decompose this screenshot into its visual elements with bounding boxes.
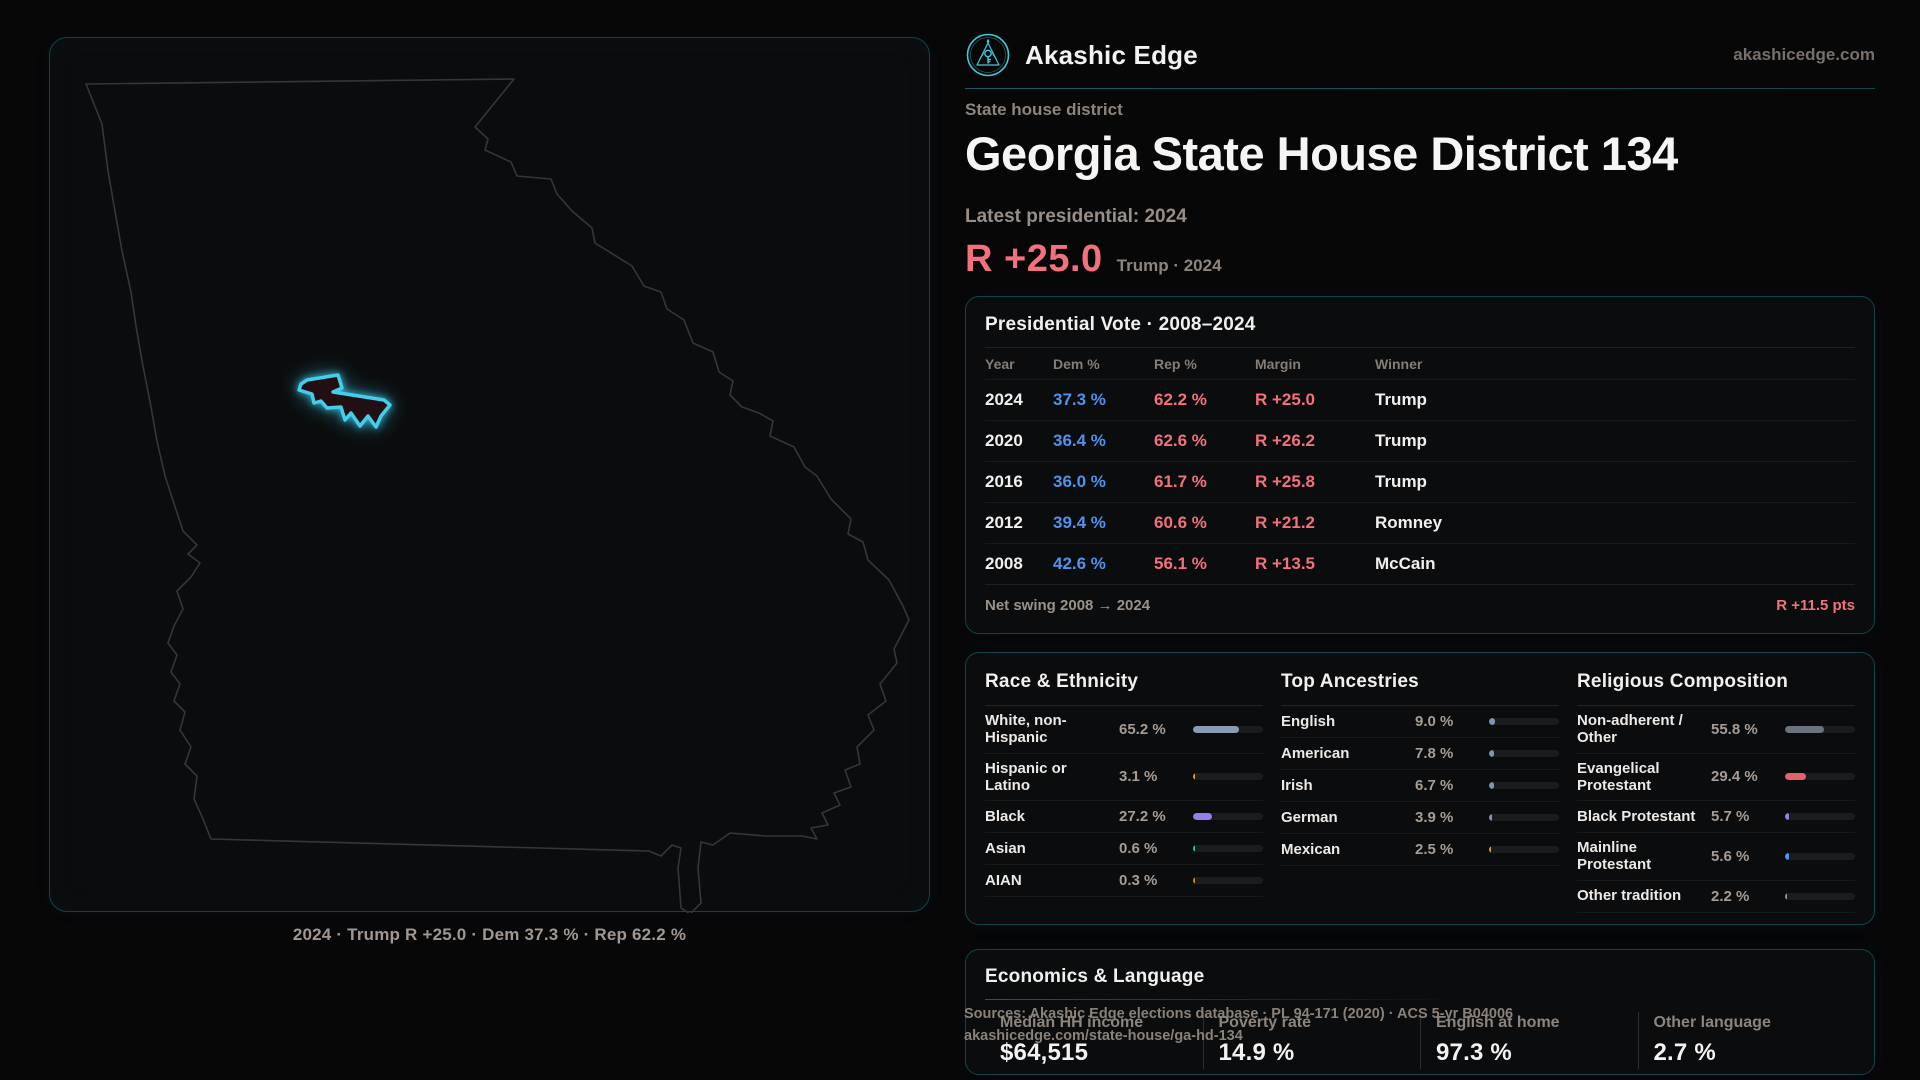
presidential-row-2020: 202036.4 %62.6 %R +26.2Trump [985, 420, 1855, 461]
stat-bar-fill [1489, 814, 1492, 821]
stat-row: Evangelical Protestant29.4 % [1577, 754, 1855, 802]
econ-stat-other-language: Other language2.7 % [1638, 1012, 1856, 1069]
stat-label: Mainline Protestant [1577, 839, 1711, 874]
stat-bar-track [1785, 773, 1855, 780]
brand-name: Akashic Edge [1025, 40, 1198, 71]
cell-dem-pct: 37.3 % [1053, 390, 1154, 410]
stat-bar-fill [1193, 773, 1195, 780]
presidential-vote-panel: Presidential Vote · 2008–2024 YearDem %R… [965, 296, 1875, 634]
stat-bar-fill [1489, 750, 1494, 757]
stat-value: 2.5 % [1415, 841, 1489, 858]
stat-label: Black Protestant [1577, 808, 1711, 825]
stat-row: American7.8 % [1281, 738, 1559, 770]
stat-label: Black [985, 808, 1119, 825]
stat-value: 55.8 % [1711, 721, 1785, 738]
margin-value: R +25.0 [965, 238, 1103, 281]
stat-bar-track [1785, 726, 1855, 733]
column-header-rep: Rep % [1154, 356, 1255, 372]
cell-margin: R +21.2 [1255, 513, 1375, 533]
demo-group-title: Religious Composition [1577, 671, 1855, 706]
economics-title: Economics & Language [985, 966, 1855, 988]
stat-label: Asian [985, 840, 1119, 857]
akashic-edge-logo-icon [965, 32, 1011, 78]
margin-context: Trump · 2024 [1117, 256, 1222, 276]
demographics-grid: Race & EthnicityWhite, non-Hispanic65.2 … [985, 671, 1855, 913]
econ-stat-value: 14.9 % [1219, 1039, 1421, 1067]
district-shape[interactable] [299, 375, 390, 427]
cell-margin: R +26.2 [1255, 431, 1375, 451]
stat-row: AIAN0.3 % [985, 865, 1263, 897]
stat-bar-track [1193, 877, 1263, 884]
stat-bar-track [1193, 813, 1263, 820]
economics-stats: Median HH income$64,515Poverty rate14.9 … [985, 1012, 1855, 1069]
stat-value: 3.9 % [1415, 809, 1489, 826]
stat-value: 29.4 % [1711, 768, 1785, 785]
stat-bar-track [1489, 782, 1559, 789]
header-divider [965, 88, 1875, 89]
stat-row: German3.9 % [1281, 802, 1559, 834]
stat-label: Hispanic or Latino [985, 760, 1119, 795]
stat-bar-fill [1785, 853, 1789, 860]
presidential-row-2016: 201636.0 %61.7 %R +25.8Trump [985, 461, 1855, 502]
cell-winner: Trump [1375, 472, 1855, 492]
stat-bar-fill [1193, 845, 1195, 852]
stat-bar-fill [1193, 726, 1239, 733]
stat-label: German [1281, 809, 1415, 826]
stat-bar-fill [1489, 782, 1494, 789]
stat-bar-track [1489, 814, 1559, 821]
presidential-table-header: YearDem %Rep %MarginWinner [985, 347, 1855, 379]
stat-bar-track [1489, 750, 1559, 757]
stat-bar-track [1193, 726, 1263, 733]
cell-winner: Trump [1375, 431, 1855, 451]
cell-margin: R +13.5 [1255, 554, 1375, 574]
stat-value: 9.0 % [1415, 713, 1489, 730]
column-header-year: Year [985, 356, 1053, 372]
presidential-vote-title: Presidential Vote · 2008–2024 [985, 314, 1855, 336]
stat-value: 6.7 % [1415, 777, 1489, 794]
stat-bar-fill [1785, 726, 1824, 733]
stat-row: Irish6.7 % [1281, 770, 1559, 802]
stat-value: 2.2 % [1711, 888, 1785, 905]
demo-group-top-ancestries: Top AncestriesEnglish9.0 %American7.8 %I… [1281, 671, 1559, 913]
stat-row: English9.0 % [1281, 706, 1559, 738]
stat-bar-fill [1785, 813, 1789, 820]
stat-row: Other tradition2.2 % [1577, 881, 1855, 913]
cell-rep-pct: 62.2 % [1154, 390, 1255, 410]
stat-label: Mexican [1281, 841, 1415, 858]
net-swing-label: Net swing 2008 → 2024 [985, 597, 1150, 614]
econ-stat-label: Median HH income [1000, 1014, 1203, 1032]
site-header: Akashic Edge akashicedge.com [965, 30, 1875, 86]
district-kicker: State house district [965, 100, 1123, 120]
stat-bar-track [1785, 813, 1855, 820]
stat-bar-fill [1193, 877, 1195, 884]
stat-value: 7.8 % [1415, 745, 1489, 762]
headline-margin: R +25.0 Trump · 2024 [965, 238, 1222, 281]
stat-bar-fill [1193, 813, 1212, 820]
stat-value: 5.7 % [1711, 808, 1785, 825]
cell-dem-pct: 36.4 % [1053, 431, 1154, 451]
page-title: Georgia State House District 134 [965, 126, 1678, 181]
presidential-row-2008: 200842.6 %56.1 %R +13.5McCain [985, 543, 1855, 584]
econ-stat-label: Other language [1654, 1014, 1856, 1032]
cell-year: 2012 [985, 513, 1053, 533]
georgia-map [50, 38, 931, 913]
cell-margin: R +25.0 [1255, 390, 1375, 410]
stat-label: English [1281, 713, 1415, 730]
demo-group-title: Top Ancestries [1281, 671, 1559, 706]
net-swing-value: R +11.5 pts [1776, 597, 1855, 614]
stat-row: Asian0.6 % [985, 833, 1263, 865]
demo-group-religious-composition: Religious CompositionNon-adherent / Othe… [1577, 671, 1855, 913]
stat-row: Hispanic or Latino3.1 % [985, 754, 1263, 802]
stat-value: 0.6 % [1119, 840, 1193, 857]
stat-row: Black27.2 % [985, 801, 1263, 833]
cell-winner: Romney [1375, 513, 1855, 533]
cell-winner: McCain [1375, 554, 1855, 574]
econ-stat-label: Poverty rate [1219, 1014, 1421, 1032]
column-header-winner: Winner [1375, 356, 1855, 372]
economics-title-divider [985, 999, 1464, 1000]
econ-stat-median-hh-income: Median HH income$64,515 [985, 1012, 1203, 1069]
econ-stat-english-at-home: English at home97.3 % [1420, 1012, 1638, 1069]
stat-value: 0.3 % [1119, 872, 1193, 889]
net-swing-row: Net swing 2008 → 2024 R +11.5 pts [985, 584, 1855, 626]
presidential-row-2012: 201239.4 %60.6 %R +21.2Romney [985, 502, 1855, 543]
stat-value: 65.2 % [1119, 721, 1193, 738]
stat-value: 27.2 % [1119, 808, 1193, 825]
cell-rep-pct: 62.6 % [1154, 431, 1255, 451]
cell-rep-pct: 60.6 % [1154, 513, 1255, 533]
latest-presidential-label: Latest presidential: 2024 [965, 206, 1187, 228]
map-panel [49, 37, 930, 912]
stat-bar-fill [1489, 718, 1495, 725]
stat-label: American [1281, 745, 1415, 762]
demographics-panel: Race & EthnicityWhite, non-Hispanic65.2 … [965, 652, 1875, 925]
stat-row: Non-adherent / Other55.8 % [1577, 706, 1855, 754]
site-domain-link[interactable]: akashicedge.com [1733, 45, 1875, 65]
cell-margin: R +25.8 [1255, 472, 1375, 492]
cell-year: 2016 [985, 472, 1053, 492]
econ-stat-value: $64,515 [1000, 1039, 1203, 1067]
stat-row: Mainline Protestant5.6 % [1577, 833, 1855, 881]
stat-label: Non-adherent / Other [1577, 712, 1711, 747]
stat-value: 3.1 % [1119, 768, 1193, 785]
stat-bar-fill [1489, 846, 1491, 853]
stat-bar-fill [1785, 893, 1787, 900]
stat-label: Evangelical Protestant [1577, 760, 1711, 795]
econ-stat-poverty-rate: Poverty rate14.9 % [1203, 1012, 1421, 1069]
cell-rep-pct: 56.1 % [1154, 554, 1255, 574]
cell-rep-pct: 61.7 % [1154, 472, 1255, 492]
presidential-row-2024: 202437.3 %62.2 %R +25.0Trump [985, 379, 1855, 420]
page: 2024 · Trump R +25.0 · Dem 37.3 % · Rep … [0, 0, 1920, 1080]
stat-bar-fill [1785, 773, 1806, 780]
stat-bar-track [1193, 773, 1263, 780]
econ-stat-value: 2.7 % [1654, 1039, 1856, 1067]
stat-bar-track [1785, 893, 1855, 900]
georgia-outline [86, 79, 909, 913]
cell-dem-pct: 42.6 % [1053, 554, 1154, 574]
stat-label: Irish [1281, 777, 1415, 794]
stat-label: White, non-Hispanic [985, 712, 1119, 747]
stat-bar-track [1193, 845, 1263, 852]
column-header-dem: Dem % [1053, 356, 1154, 372]
stat-row: Mexican2.5 % [1281, 834, 1559, 866]
cell-dem-pct: 36.0 % [1053, 472, 1154, 492]
stat-row: Black Protestant5.7 % [1577, 801, 1855, 833]
econ-stat-value: 97.3 % [1436, 1039, 1638, 1067]
map-caption: 2024 · Trump R +25.0 · Dem 37.3 % · Rep … [49, 925, 930, 945]
demo-group-title: Race & Ethnicity [985, 671, 1263, 706]
stat-row: White, non-Hispanic65.2 % [985, 706, 1263, 754]
stat-bar-track [1489, 846, 1559, 853]
presidential-table-body: 202437.3 %62.2 %R +25.0Trump202036.4 %62… [985, 379, 1855, 584]
stat-bar-track [1785, 853, 1855, 860]
stat-label: AIAN [985, 872, 1119, 889]
cell-dem-pct: 39.4 % [1053, 513, 1154, 533]
stat-bar-track [1489, 718, 1559, 725]
cell-year: 2020 [985, 431, 1053, 451]
stat-label: Other tradition [1577, 887, 1711, 904]
cell-winner: Trump [1375, 390, 1855, 410]
cell-year: 2008 [985, 554, 1053, 574]
economics-panel: Economics & Language Median HH income$64… [965, 949, 1875, 1075]
cell-year: 2024 [985, 390, 1053, 410]
column-header-margin: Margin [1255, 356, 1375, 372]
demo-group-race-ethnicity: Race & EthnicityWhite, non-Hispanic65.2 … [985, 671, 1263, 913]
stat-value: 5.6 % [1711, 848, 1785, 865]
econ-stat-label: English at home [1436, 1014, 1638, 1032]
